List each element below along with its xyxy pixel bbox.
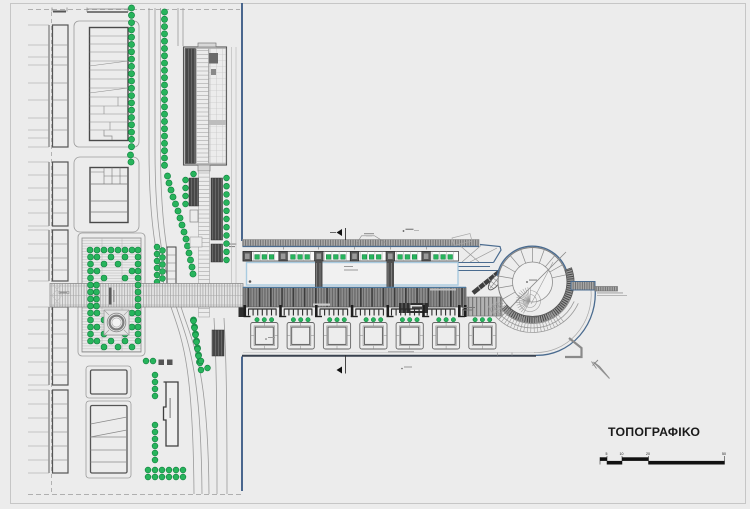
- svg-text:50: 50: [722, 452, 726, 456]
- svg-text:10: 10: [620, 452, 624, 456]
- svg-text:ΤΟΠΟΓΡΑΦΙΚΟ: ΤΟΠΟΓΡΑΦΙΚΟ: [608, 425, 700, 439]
- svg-text:20: 20: [646, 452, 650, 456]
- svg-text:5: 5: [606, 452, 608, 456]
